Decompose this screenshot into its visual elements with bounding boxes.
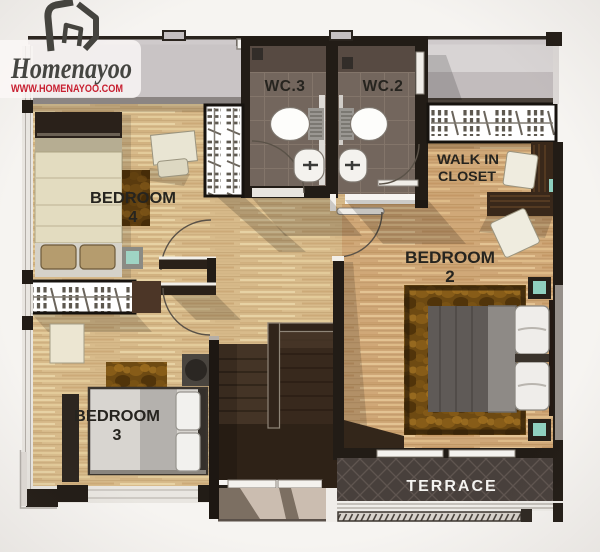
svg-text:Homenayoo: Homenayoo — [10, 52, 132, 85]
svg-text:WWW.HOMENAYOO.COM: WWW.HOMENAYOO.COM — [11, 83, 123, 95]
